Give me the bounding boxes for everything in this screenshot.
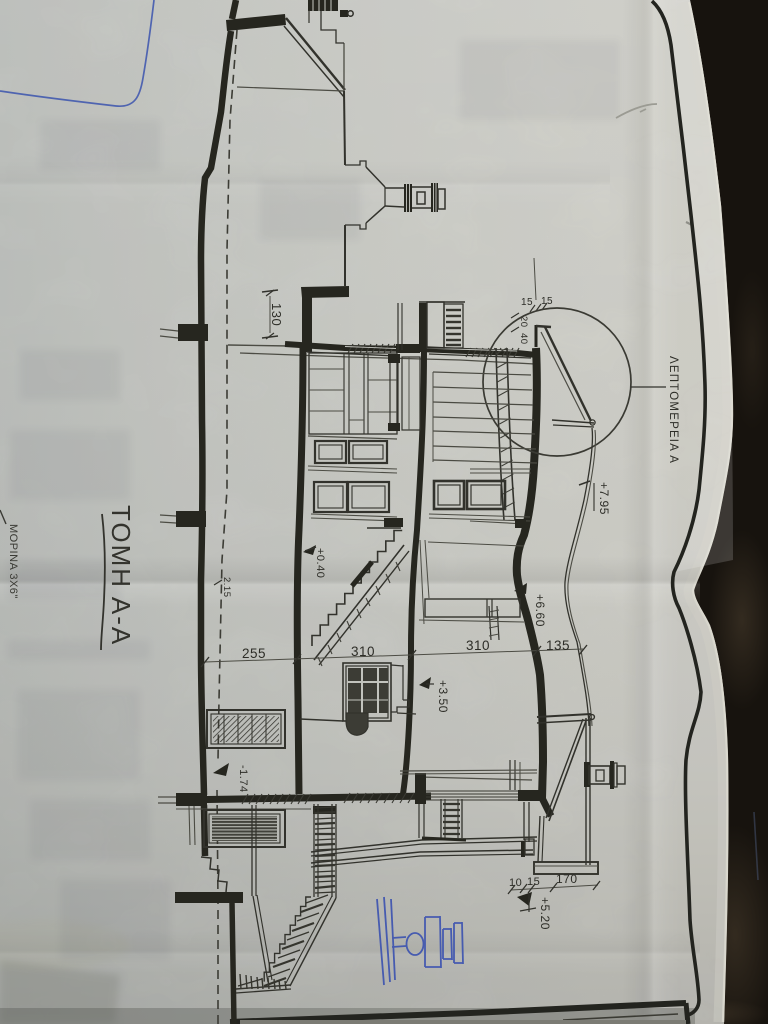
svg-text:15: 15	[541, 296, 553, 307]
svg-text:ΤΟΜΗ Α-Α: ΤΟΜΗ Α-Α	[106, 505, 136, 646]
svg-text:15: 15	[521, 297, 533, 308]
svg-text:+0.40: +0.40	[314, 548, 326, 578]
svg-text:135: 135	[546, 638, 570, 653]
svg-text:130: 130	[269, 303, 284, 326]
svg-text:-1.74: -1.74	[237, 765, 249, 793]
svg-text:+6.60: +6.60	[533, 594, 547, 627]
svg-text:170: 170	[556, 872, 578, 886]
svg-text:40: 40	[518, 333, 529, 345]
svg-text:10: 10	[509, 877, 522, 889]
svg-text:15: 15	[527, 876, 540, 888]
svg-text:ΜΟΡΙΝΑ 3Χ6": ΜΟΡΙΝΑ 3Χ6"	[7, 524, 19, 599]
svg-text:+7.95: +7.95	[597, 482, 611, 515]
svg-text:310: 310	[351, 644, 375, 659]
svg-text:310: 310	[466, 638, 490, 653]
svg-text:ΛΕΠΤΟΜΕΡΕΙΑ Α: ΛΕΠΤΟΜΕΡΕΙΑ Α	[667, 356, 679, 464]
svg-text:+5.20: +5.20	[538, 897, 552, 930]
svg-text:+3.50: +3.50	[436, 680, 450, 713]
svg-text:255: 255	[242, 646, 266, 661]
svg-text:2.15: 2.15	[221, 577, 232, 598]
